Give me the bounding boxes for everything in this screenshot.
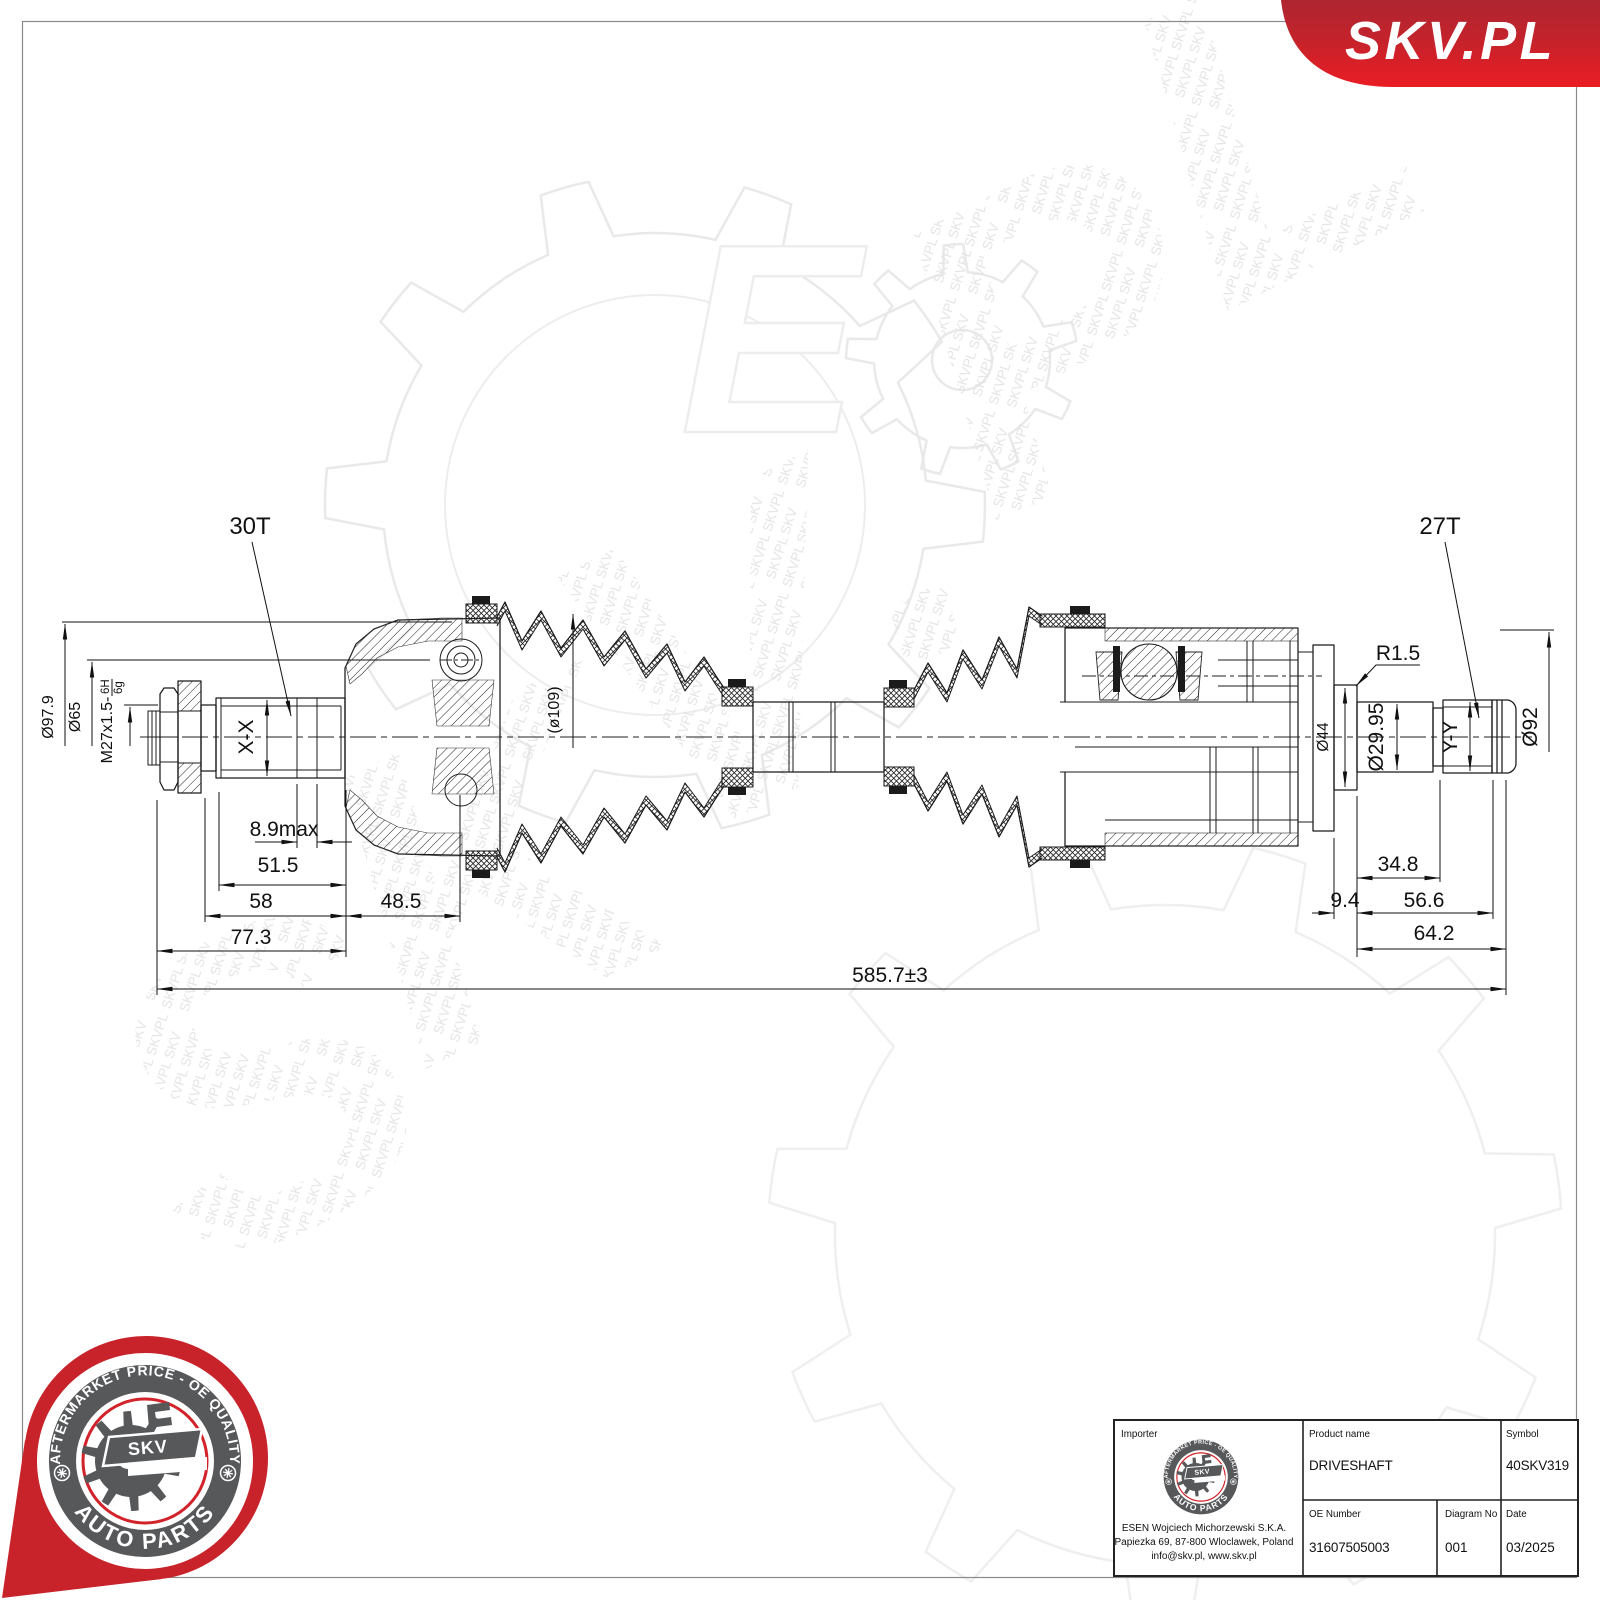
svg-text:SKV.PL: SKV.PL (1345, 11, 1556, 71)
svg-text:(ø109): (ø109) (546, 686, 563, 733)
svg-text:Ø65: Ø65 (67, 702, 84, 732)
svg-text:77.3: 77.3 (231, 926, 272, 949)
svg-text:8.9max: 8.9max (250, 818, 319, 841)
svg-text:31607505003: 31607505003 (1309, 1540, 1389, 1555)
svg-text:58: 58 (249, 890, 272, 913)
svg-text:Y-Y: Y-Y (1439, 720, 1462, 753)
svg-text:27T: 27T (1419, 513, 1461, 540)
svg-text:Ø29.95: Ø29.95 (1365, 703, 1388, 772)
svg-text:585.7±3: 585.7±3 (852, 964, 928, 987)
svg-text:40SKV319: 40SKV319 (1506, 1458, 1569, 1473)
svg-text:9.4: 9.4 (1330, 889, 1360, 912)
svg-text:Ø44: Ø44 (1315, 722, 1332, 752)
svg-text:6H: 6H (100, 679, 112, 694)
svg-text:30T: 30T (229, 513, 271, 540)
svg-text:34.8: 34.8 (1378, 853, 1419, 876)
svg-text:Importer: Importer (1121, 1429, 1158, 1440)
svg-text:56.6: 56.6 (1404, 889, 1445, 912)
svg-text:Papiezka 69, 87-800 Wloclawek,: Papiezka 69, 87-800 Wloclawek, Poland (1115, 1537, 1294, 1548)
svg-text:Ø92: Ø92 (1519, 707, 1542, 747)
svg-text:ESEN Wojciech Michorzewski S.K: ESEN Wojciech Michorzewski S.K.A. (1122, 1523, 1286, 1534)
svg-text:OE Number: OE Number (1309, 1509, 1361, 1520)
svg-text:R1.5: R1.5 (1376, 642, 1420, 665)
svg-text:03/2025: 03/2025 (1506, 1540, 1555, 1555)
svg-text:6g: 6g (113, 681, 125, 694)
svg-text:Date: Date (1506, 1509, 1527, 1520)
svg-text:Diagram No: Diagram No (1445, 1509, 1498, 1520)
svg-text:X-X: X-X (235, 719, 258, 754)
svg-text:51.5: 51.5 (258, 854, 299, 877)
svg-text:Ø97.9: Ø97.9 (40, 695, 57, 739)
svg-text:M27x1.5-: M27x1.5- (99, 697, 116, 764)
svg-text:info@skv.pl, www.skv.pl: info@skv.pl, www.skv.pl (1151, 1551, 1256, 1562)
svg-text:Product name: Product name (1309, 1429, 1371, 1440)
svg-text:Symbol: Symbol (1506, 1429, 1539, 1440)
svg-text:48.5: 48.5 (381, 890, 422, 913)
svg-text:001: 001 (1445, 1540, 1468, 1555)
svg-text:64.2: 64.2 (1414, 922, 1455, 945)
svg-text:DRIVESHAFT: DRIVESHAFT (1309, 1458, 1393, 1473)
